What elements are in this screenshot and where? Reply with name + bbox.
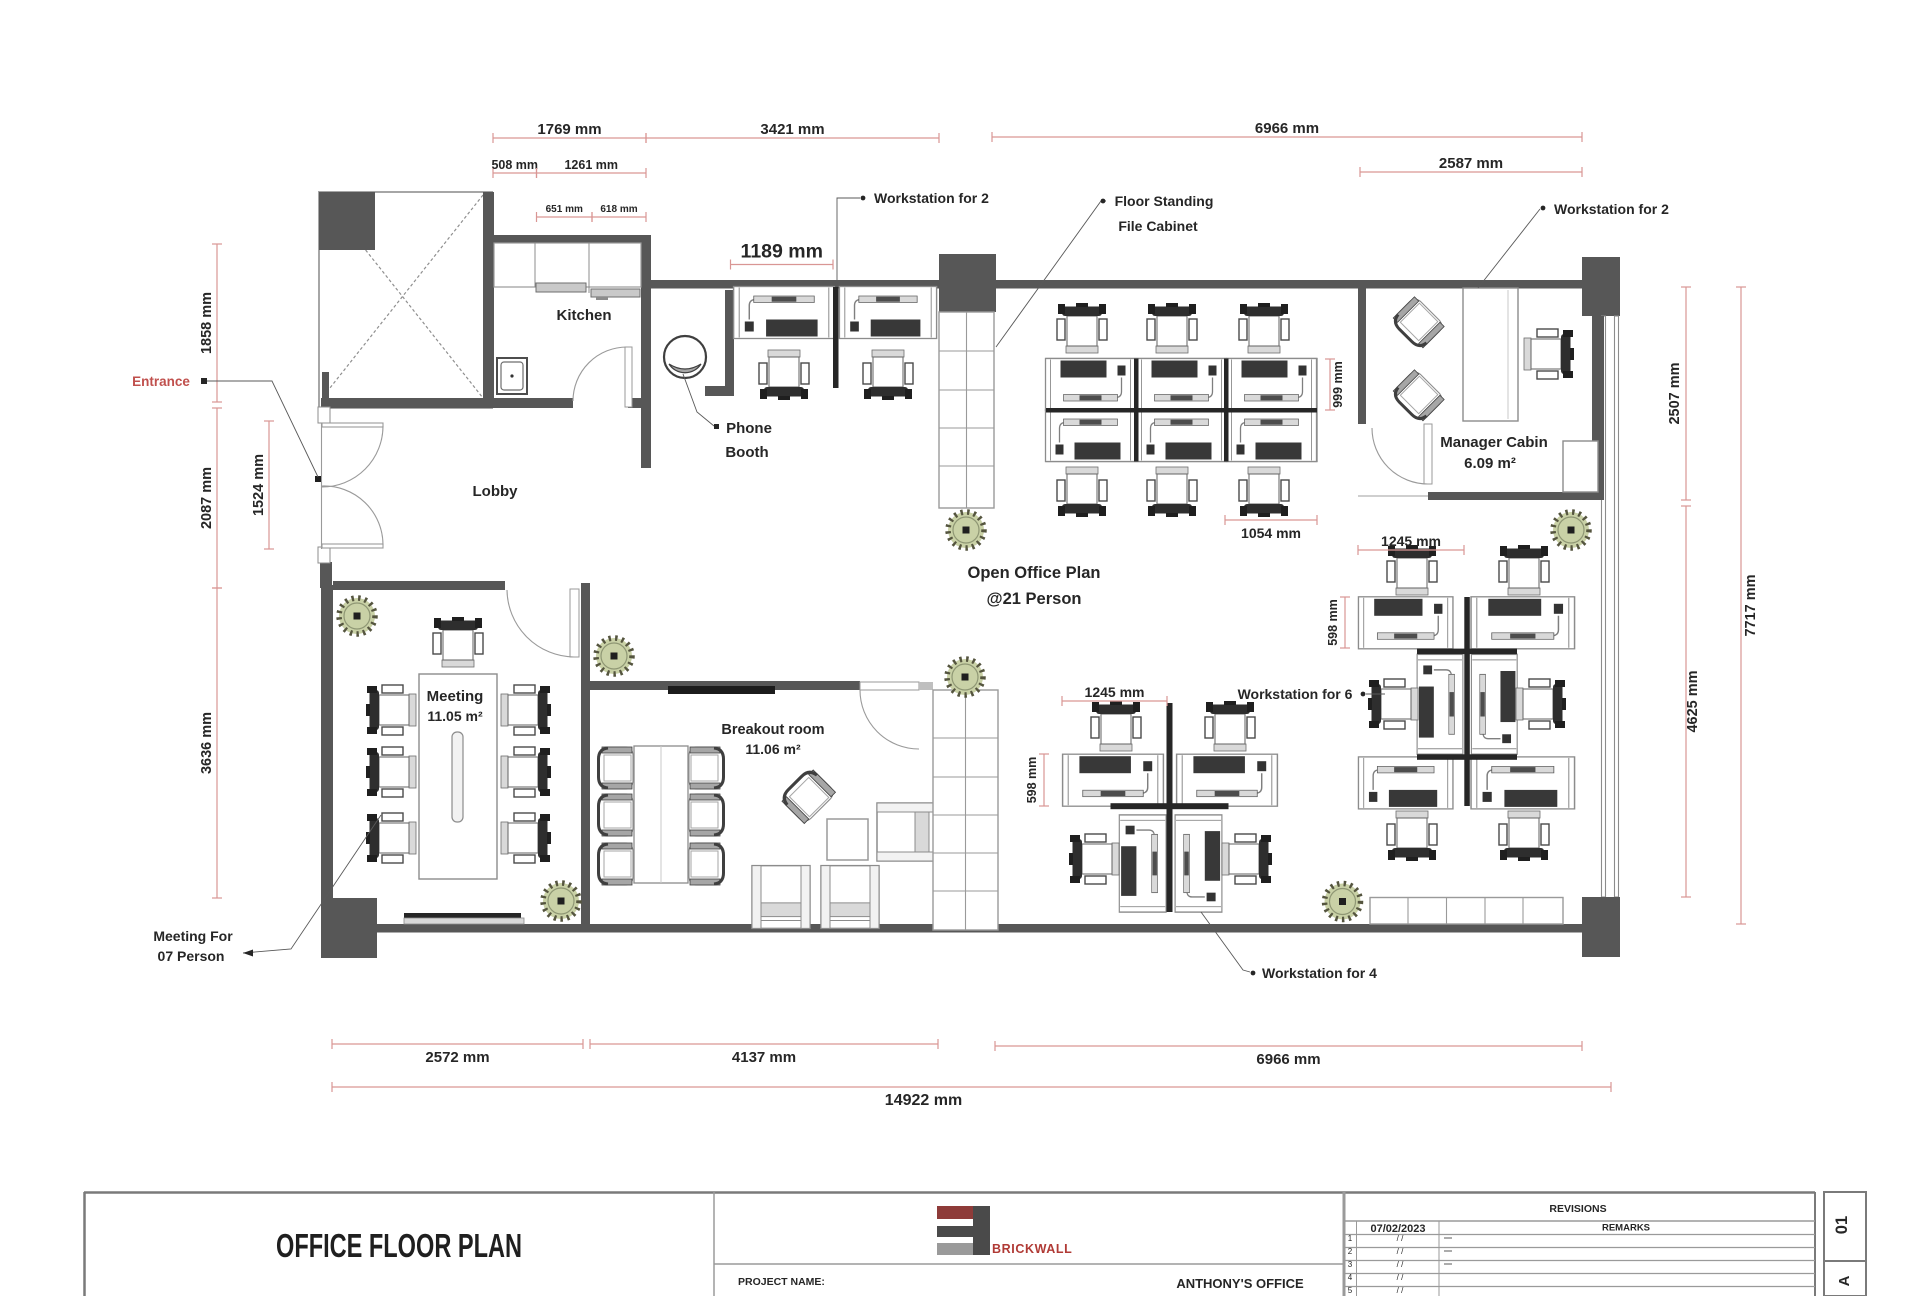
- svg-text:/ /: / /: [1397, 1260, 1404, 1269]
- svg-text:1858 mm: 1858 mm: [199, 292, 215, 354]
- svg-text:BRICKWALL: BRICKWALL: [992, 1242, 1072, 1256]
- svg-text:4: 4: [1348, 1273, 1353, 1282]
- svg-text:1245 mm: 1245 mm: [1381, 533, 1441, 549]
- svg-text:1054 mm: 1054 mm: [1241, 525, 1301, 541]
- svg-text:Meeting For: Meeting For: [153, 928, 233, 944]
- svg-text:2587 mm: 2587 mm: [1439, 155, 1503, 172]
- svg-text:Kitchen: Kitchen: [556, 307, 611, 324]
- svg-text:Entrance: Entrance: [132, 374, 190, 389]
- svg-text:REMARKS: REMARKS: [1602, 1223, 1650, 1234]
- svg-text:07 Person: 07 Person: [158, 948, 225, 964]
- svg-text:3636 mm: 3636 mm: [199, 712, 215, 774]
- svg-text:Workstation for 2: Workstation for 2: [1554, 201, 1669, 217]
- svg-text:2: 2: [1348, 1247, 1353, 1256]
- svg-text:598 mm: 598 mm: [1025, 757, 1039, 804]
- svg-text:1524 mm: 1524 mm: [251, 454, 267, 516]
- svg-text:3: 3: [1348, 1260, 1353, 1269]
- svg-text:PROJECT NAME:: PROJECT NAME:: [738, 1276, 825, 1288]
- svg-text:1: 1: [1348, 1234, 1353, 1243]
- svg-text:1261 mm: 1261 mm: [564, 158, 618, 172]
- svg-text:6966 mm: 6966 mm: [1255, 120, 1319, 137]
- svg-text:508 mm: 508 mm: [491, 158, 538, 172]
- svg-text:Booth: Booth: [725, 444, 768, 461]
- svg-text:A: A: [1836, 1275, 1853, 1286]
- svg-text:7717 mm: 7717 mm: [1743, 574, 1759, 636]
- svg-text:11.06 m²: 11.06 m²: [745, 741, 801, 757]
- svg-text:Workstation for 2: Workstation for 2: [874, 190, 989, 206]
- svg-text:Lobby: Lobby: [473, 483, 519, 500]
- svg-text:1769 mm: 1769 mm: [537, 121, 601, 138]
- svg-text:618 mm: 618 mm: [600, 204, 637, 215]
- svg-text:Floor Standing: Floor Standing: [1115, 193, 1214, 209]
- svg-text:Phone: Phone: [726, 420, 772, 437]
- svg-text:@21 Person: @21 Person: [987, 590, 1082, 608]
- svg-text:Meeting: Meeting: [427, 688, 484, 705]
- svg-text:/ /: / /: [1397, 1247, 1404, 1256]
- svg-text:ANTHONY'S OFFICE: ANTHONY'S OFFICE: [1176, 1276, 1304, 1291]
- svg-text:6966 mm: 6966 mm: [1256, 1051, 1320, 1068]
- svg-text:Breakout room: Breakout room: [721, 722, 824, 738]
- svg-text:2087 mm: 2087 mm: [199, 467, 215, 529]
- svg-text:1245 mm: 1245 mm: [1085, 684, 1145, 700]
- svg-text:/ /: / /: [1397, 1273, 1404, 1282]
- svg-text:REVISIONS: REVISIONS: [1549, 1203, 1606, 1215]
- svg-text:4625 mm: 4625 mm: [1685, 670, 1701, 732]
- svg-text:14922 mm: 14922 mm: [885, 1092, 962, 1109]
- svg-text:/ /: / /: [1397, 1286, 1404, 1295]
- svg-text:Manager Cabin: Manager Cabin: [1440, 434, 1548, 451]
- svg-text:3421 mm: 3421 mm: [760, 121, 824, 138]
- svg-text:598 mm: 598 mm: [1326, 599, 1340, 646]
- svg-text:5: 5: [1348, 1286, 1353, 1295]
- svg-text:1189 mm: 1189 mm: [741, 241, 823, 263]
- svg-text:651 mm: 651 mm: [546, 204, 583, 215]
- svg-text:11.05 m²: 11.05 m²: [427, 708, 483, 724]
- svg-text:OFFICE FLOOR PLAN: OFFICE FLOOR PLAN: [276, 1227, 522, 1264]
- svg-text:File Cabinet: File Cabinet: [1118, 218, 1198, 234]
- svg-text:Open Office Plan: Open Office Plan: [968, 564, 1101, 582]
- svg-text:Workstation for 6: Workstation for 6: [1238, 686, 1353, 702]
- svg-text:4137 mm: 4137 mm: [732, 1049, 796, 1066]
- svg-text:Workstation for 4: Workstation for 4: [1262, 965, 1377, 981]
- svg-text:6.09 m²: 6.09 m²: [1464, 455, 1516, 472]
- svg-text:/ /: / /: [1397, 1234, 1404, 1243]
- svg-text:999 mm: 999 mm: [1331, 361, 1345, 408]
- svg-text:2507 mm: 2507 mm: [1667, 362, 1683, 424]
- svg-text:01: 01: [1833, 1216, 1851, 1234]
- svg-text:2572 mm: 2572 mm: [425, 1049, 489, 1066]
